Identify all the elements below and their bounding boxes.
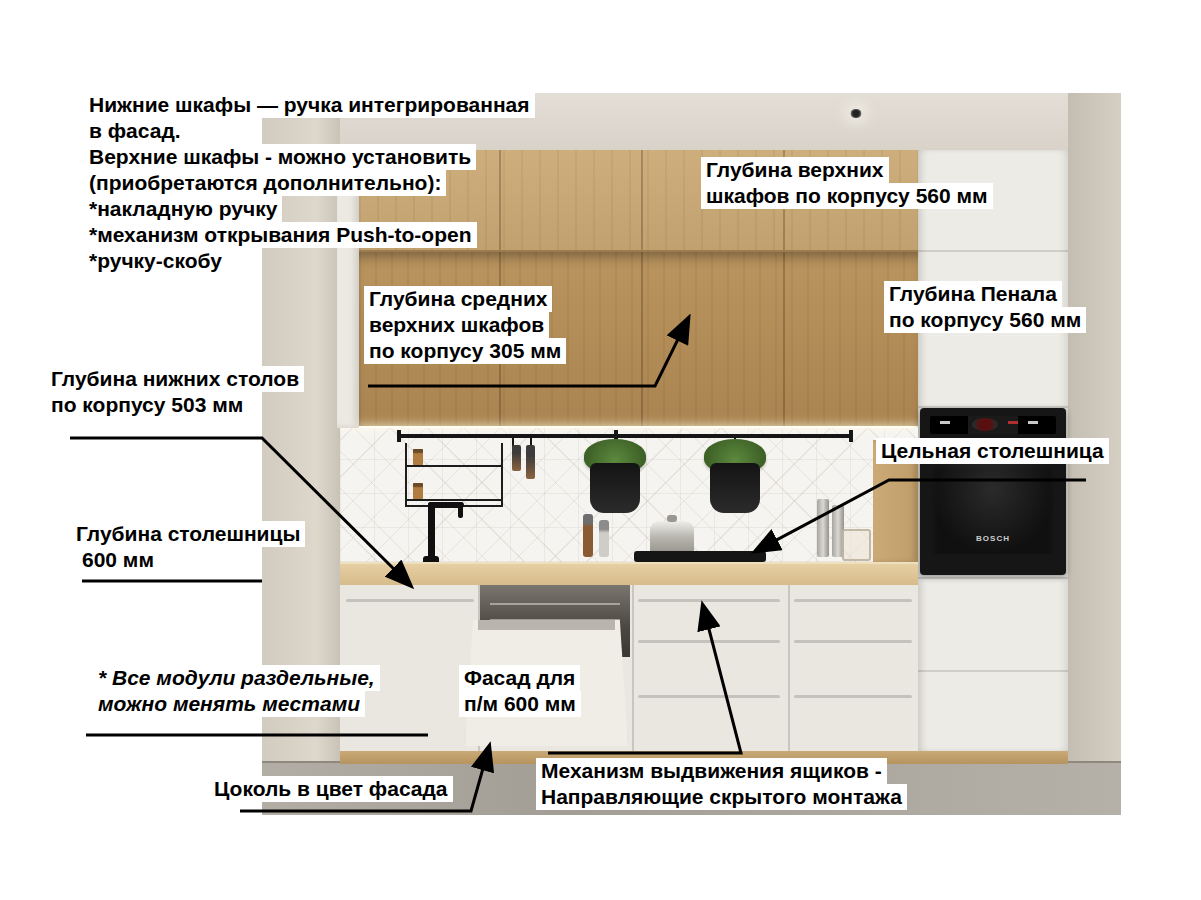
oven-control-mark: [940, 421, 950, 424]
oven-display: [972, 418, 998, 431]
door-seam: [641, 150, 643, 250]
label-line: Цоколь в цвет фасада: [209, 776, 453, 802]
info-line: Верхние шкафы - можно установить: [84, 144, 476, 170]
faucet-post: [428, 502, 435, 560]
annotated-kitchen-diagram: BOSCH: [0, 0, 1201, 900]
info-line: *накладную ручку: [84, 196, 282, 222]
info-block: Нижние шкафы — ручка интегрированная в ф…: [84, 92, 535, 274]
door-seam: [918, 670, 1068, 672]
spice-rack: [405, 443, 503, 507]
oven-brand-logo: BOSCH: [920, 534, 1066, 544]
cabinet-seam: [788, 585, 790, 751]
built-in-oven: BOSCH: [920, 408, 1066, 575]
label-line: Направляющие скрытого монтажа: [536, 784, 907, 810]
label-base-cabinet-depth: Глубина нижних столов по корпусу 503 мм: [46, 366, 304, 418]
label-mid-upper-cabinet-depth: Глубина средних верхних шкафов по корпус…: [364, 286, 566, 364]
right-wall: [1068, 93, 1121, 761]
label-line: верхних шкафов: [364, 312, 549, 338]
faucet-spout: [458, 502, 463, 518]
label-line: шкафов по корпусу 560 мм: [701, 183, 993, 209]
salt-mill: [599, 520, 609, 557]
door-seam: [918, 250, 1068, 252]
handle-groove: [346, 599, 474, 602]
label-plinth: Цоколь в цвет фасада: [209, 776, 453, 802]
spice-jar: [413, 483, 423, 499]
label-upper-cabinet-depth: Глубина верхних шкафов по корпусу 560 мм: [701, 157, 993, 209]
handle-groove: [638, 599, 780, 602]
drawer-seam: [638, 640, 780, 643]
dishwasher-basket: [490, 603, 620, 605]
label-line: * Все модули раздельные,: [93, 665, 380, 691]
label-line: Механизм выдвижения ящиков -: [536, 758, 887, 784]
rack-shelf: [407, 499, 501, 501]
label-line: Глубина нижних столов: [46, 366, 304, 392]
info-line: в фасад.: [84, 118, 186, 144]
info-line: Нижние шкафы — ручка интегрированная: [84, 92, 535, 118]
label-solid-countertop: Цельная столешница: [876, 438, 1109, 464]
oven-control-mark: [1028, 421, 1038, 424]
rail-bracket: [397, 430, 401, 442]
cabinet-seam: [632, 585, 634, 751]
drawer-seam: [638, 695, 780, 698]
hanging-spice-tube: [512, 445, 521, 471]
label-line: можно менять местами: [93, 691, 365, 717]
label-line: 600 мм: [77, 547, 159, 573]
hanging-rail: [397, 434, 853, 438]
door-seam: [641, 252, 643, 426]
info-line: (приобретаются дополнительно):: [84, 170, 446, 196]
label-countertop-depth: Глубина столешницы 600 мм: [71, 521, 305, 573]
door-seam: [783, 252, 785, 426]
hanging-spice-tube: [526, 445, 535, 479]
label-modules-note: * Все модули раздельные, можно менять ме…: [93, 665, 380, 717]
label-line: по корпусу 560 мм: [884, 307, 1086, 333]
hanging-pot: [710, 463, 760, 513]
info-line: *ручку-скобу: [84, 248, 227, 274]
handle-groove: [794, 599, 912, 602]
label-line: по корпусу 503 мм: [46, 392, 248, 418]
label-drawer-mechanism: Механизм выдвижения ящиков - Направляющи…: [536, 758, 907, 810]
hanging-pot: [590, 463, 640, 513]
label-dishwasher-facade: Фасад для п/м 600 мм: [459, 665, 581, 717]
ceiling-spotlight: [850, 109, 862, 118]
pepper-mill: [583, 514, 593, 557]
label-line: Глубина столешницы: [71, 521, 305, 547]
glass-cup: [842, 529, 871, 561]
rack-shelf: [407, 465, 501, 467]
label-line: Глубина верхних: [701, 157, 889, 183]
cooktop: [634, 551, 766, 562]
label-line: Фасад для: [459, 665, 580, 691]
rail-bracket: [849, 430, 853, 442]
kettle-lid: [667, 515, 677, 522]
drawer-seam: [794, 695, 912, 698]
label-line: по корпусу 305 мм: [364, 338, 566, 364]
dishwasher-door-edge: [478, 620, 615, 630]
label-pantry-depth: Глубина Пенала по корпусу 560 мм: [884, 281, 1086, 333]
door-seam: [918, 577, 1068, 579]
info-line: *механизм открывания Push-to-open: [84, 222, 477, 248]
oven-control-mark: [1008, 421, 1018, 424]
drawer-seam: [794, 640, 912, 643]
canister: [817, 499, 829, 557]
label-line: п/м 600 мм: [459, 691, 581, 717]
label-line: Глубина средних: [364, 286, 552, 312]
label-line: Глубина Пенала: [884, 281, 1062, 307]
spice-jar: [413, 449, 423, 465]
label-line: Цельная столешница: [876, 438, 1109, 464]
